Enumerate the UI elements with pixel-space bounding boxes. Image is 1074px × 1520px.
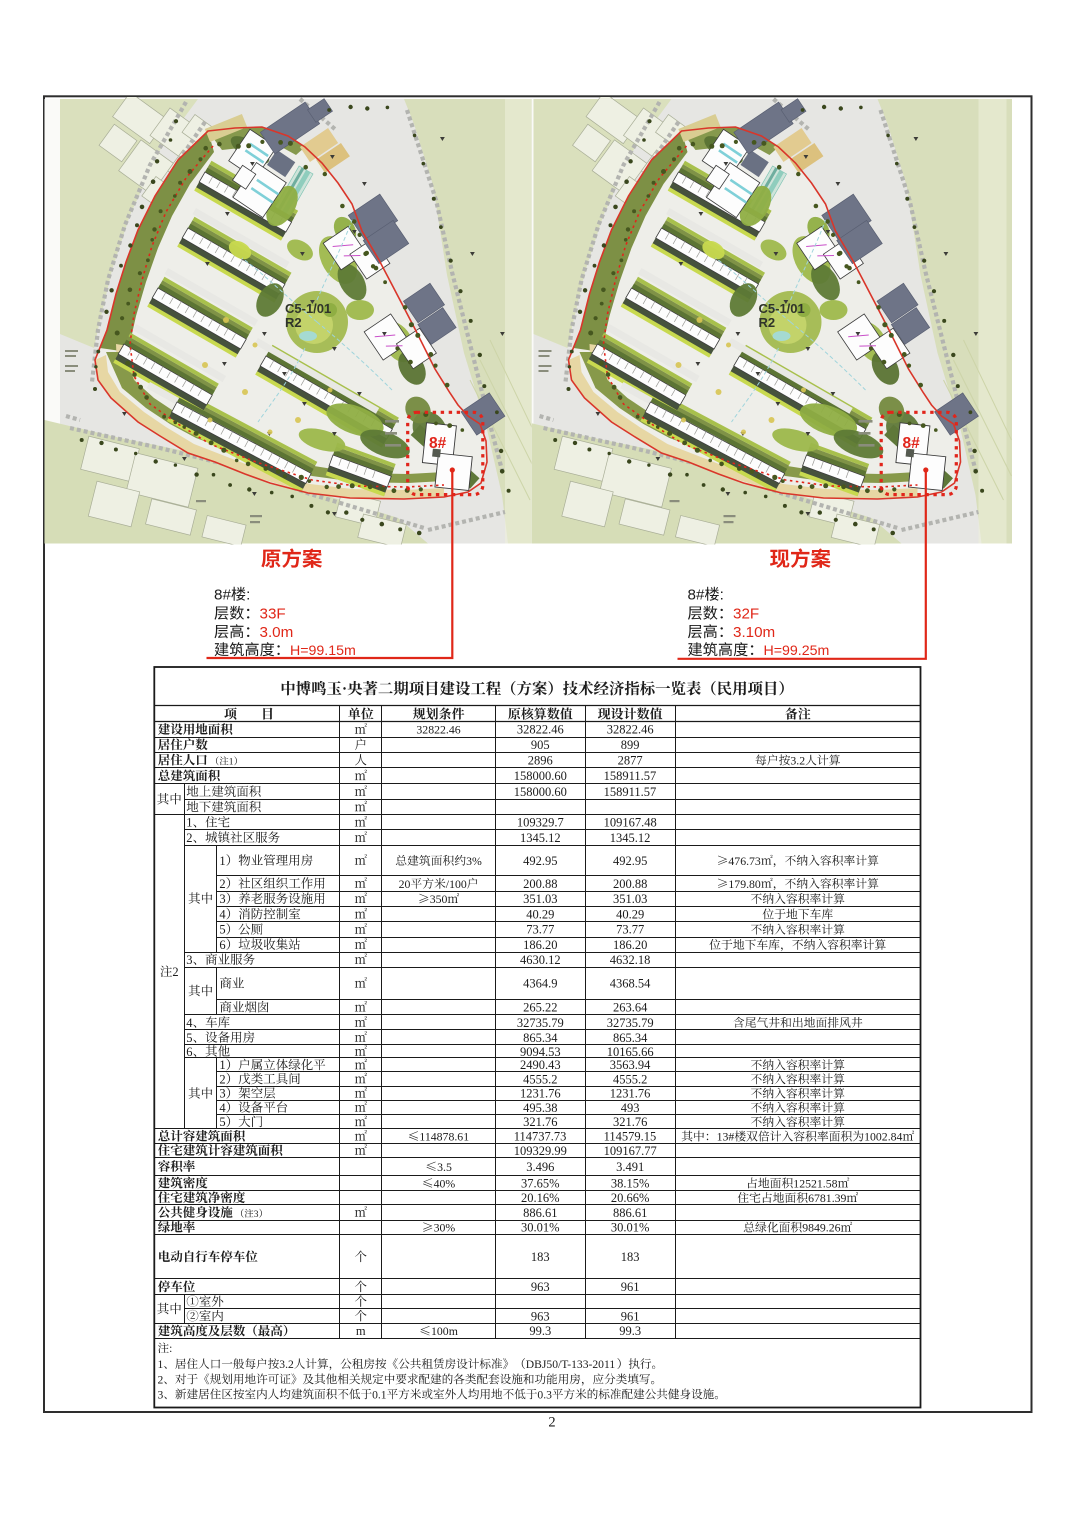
svg-text:3.10m: 3.10m bbox=[733, 624, 775, 641]
svg-text:2896: 2896 bbox=[528, 753, 553, 767]
svg-text:3: 3 bbox=[254, 1210, 259, 1220]
svg-text:3: 3 bbox=[186, 953, 192, 967]
svg-text:109167.48: 109167.48 bbox=[604, 816, 657, 830]
svg-text:6781.39: 6781.39 bbox=[808, 1191, 846, 1205]
svg-text:0.1: 0.1 bbox=[372, 1388, 387, 1401]
svg-text:30.01%: 30.01% bbox=[521, 1221, 560, 1235]
svg-text:905: 905 bbox=[531, 738, 550, 752]
svg-text:40.29: 40.29 bbox=[616, 907, 644, 921]
svg-text:961: 961 bbox=[621, 1280, 640, 1294]
svg-text:2: 2 bbox=[172, 965, 178, 979]
svg-text:m: m bbox=[356, 1324, 366, 1338]
svg-text:4: 4 bbox=[186, 1016, 193, 1030]
svg-text:3.2: 3.2 bbox=[790, 753, 805, 767]
svg-text:20: 20 bbox=[399, 877, 411, 891]
svg-text:4632.18: 4632.18 bbox=[610, 953, 651, 967]
svg-text:73.77: 73.77 bbox=[526, 923, 554, 937]
svg-text::: : bbox=[246, 587, 250, 604]
svg-text:1: 1 bbox=[158, 1358, 164, 1371]
svg-text:32735.79: 32735.79 bbox=[517, 1016, 564, 1030]
svg-text:3.0m: 3.0m bbox=[260, 624, 294, 641]
svg-text:963: 963 bbox=[531, 1309, 550, 1323]
svg-text:1345.12: 1345.12 bbox=[520, 831, 561, 845]
svg-text:200.88: 200.88 bbox=[613, 877, 647, 891]
svg-text:4364.9: 4364.9 bbox=[523, 977, 557, 991]
svg-text:2877: 2877 bbox=[618, 753, 643, 767]
svg-text:5: 5 bbox=[219, 923, 225, 937]
svg-text:2: 2 bbox=[158, 1373, 164, 1386]
svg-text:3: 3 bbox=[158, 1388, 164, 1401]
svg-text:3: 3 bbox=[219, 892, 225, 906]
svg-text:114878.61: 114878.61 bbox=[419, 1130, 469, 1144]
svg-text:183: 183 bbox=[621, 1250, 640, 1264]
svg-text:350: 350 bbox=[430, 892, 448, 906]
svg-text:351.03: 351.03 bbox=[523, 892, 557, 906]
svg-text:32822.46: 32822.46 bbox=[607, 723, 654, 737]
svg-text:2: 2 bbox=[186, 831, 192, 845]
svg-text:0.3: 0.3 bbox=[537, 1388, 552, 1401]
svg-text:321.76: 321.76 bbox=[613, 1115, 647, 1129]
svg-text:30.01%: 30.01% bbox=[611, 1221, 650, 1235]
svg-text:1: 1 bbox=[186, 816, 192, 830]
svg-text:1231.76: 1231.76 bbox=[520, 1087, 561, 1101]
svg-text:40.29: 40.29 bbox=[526, 907, 554, 921]
svg-text:114737.73: 114737.73 bbox=[514, 1130, 567, 1144]
svg-text:99.3: 99.3 bbox=[529, 1324, 551, 1338]
svg-text:179.80: 179.80 bbox=[728, 877, 761, 891]
svg-text:4555.2: 4555.2 bbox=[523, 1072, 557, 1086]
svg-text:13#: 13# bbox=[717, 1130, 735, 1144]
svg-text:5: 5 bbox=[186, 1031, 192, 1045]
svg-text:6: 6 bbox=[186, 1045, 192, 1059]
svg-text:186.20: 186.20 bbox=[613, 938, 647, 952]
svg-text:3.2: 3.2 bbox=[279, 1358, 294, 1371]
svg-text:263.64: 263.64 bbox=[613, 1001, 648, 1015]
svg-text:20.16%: 20.16% bbox=[521, 1191, 560, 1205]
svg-text:DBJ50/T-133-2011: DBJ50/T-133-2011 bbox=[526, 1358, 616, 1371]
svg-text:158911.57: 158911.57 bbox=[604, 785, 657, 799]
svg-text:3.491: 3.491 bbox=[616, 1160, 644, 1174]
svg-text:2: 2 bbox=[548, 1415, 555, 1431]
svg-text:865.34: 865.34 bbox=[523, 1031, 558, 1045]
svg-text:899: 899 bbox=[621, 738, 640, 752]
svg-text:3563.94: 3563.94 bbox=[610, 1058, 651, 1072]
svg-text:186.20: 186.20 bbox=[523, 938, 557, 952]
svg-text:2: 2 bbox=[219, 877, 225, 891]
svg-text:492.95: 492.95 bbox=[523, 854, 557, 868]
svg-text:109167.77: 109167.77 bbox=[604, 1144, 657, 1158]
svg-text::: : bbox=[169, 1342, 172, 1355]
svg-text:865.34: 865.34 bbox=[613, 1031, 648, 1045]
svg-text:37.65%: 37.65% bbox=[521, 1176, 560, 1190]
svg-text:33F: 33F bbox=[260, 606, 286, 623]
svg-text:4: 4 bbox=[219, 907, 226, 921]
svg-text:200.88: 200.88 bbox=[523, 877, 557, 891]
svg-text:12521.58: 12521.58 bbox=[793, 1176, 837, 1190]
svg-text:109329.99: 109329.99 bbox=[514, 1144, 567, 1158]
svg-text:3.496: 3.496 bbox=[526, 1160, 554, 1174]
svg-text:495.38: 495.38 bbox=[523, 1101, 557, 1115]
svg-text:32822.46: 32822.46 bbox=[416, 723, 460, 737]
svg-text:321.76: 321.76 bbox=[523, 1115, 557, 1129]
svg-text:351.03: 351.03 bbox=[613, 892, 647, 906]
svg-text:1002.84: 1002.84 bbox=[864, 1130, 902, 1144]
svg-text:9849.26: 9849.26 bbox=[802, 1221, 840, 1235]
svg-text:32F: 32F bbox=[733, 606, 759, 623]
svg-text:961: 961 bbox=[621, 1309, 640, 1323]
svg-text:20.66%: 20.66% bbox=[611, 1191, 650, 1205]
svg-text:1345.12: 1345.12 bbox=[610, 831, 651, 845]
svg-text:963: 963 bbox=[531, 1280, 550, 1294]
svg-text:30%: 30% bbox=[434, 1221, 456, 1235]
svg-text:4368.54: 4368.54 bbox=[610, 977, 651, 991]
svg-text:886.61: 886.61 bbox=[613, 1206, 647, 1220]
svg-text:3%: 3% bbox=[466, 854, 482, 868]
svg-text:109329.7: 109329.7 bbox=[517, 816, 564, 830]
svg-text:183: 183 bbox=[531, 1250, 550, 1264]
svg-text:2: 2 bbox=[219, 1072, 225, 1086]
svg-text:6: 6 bbox=[219, 938, 225, 952]
svg-text:4630.12: 4630.12 bbox=[520, 953, 561, 967]
svg-text:10165.66: 10165.66 bbox=[607, 1045, 654, 1059]
svg-text:4555.2: 4555.2 bbox=[613, 1072, 647, 1086]
svg-text:32822.46: 32822.46 bbox=[517, 723, 564, 737]
svg-text:100m: 100m bbox=[431, 1324, 458, 1338]
svg-text:32735.79: 32735.79 bbox=[607, 1016, 654, 1030]
svg-text:1: 1 bbox=[229, 757, 234, 767]
svg-text:265.22: 265.22 bbox=[523, 1001, 557, 1015]
svg-text:3: 3 bbox=[219, 1087, 225, 1101]
svg-text:158000.60: 158000.60 bbox=[514, 785, 567, 799]
svg-text:114579.15: 114579.15 bbox=[604, 1130, 657, 1144]
svg-text:158000.60: 158000.60 bbox=[514, 769, 567, 783]
svg-text:73.77: 73.77 bbox=[616, 923, 644, 937]
svg-text:158911.57: 158911.57 bbox=[604, 769, 657, 783]
svg-text:8#: 8# bbox=[214, 587, 231, 604]
svg-text:38.15%: 38.15% bbox=[611, 1176, 650, 1190]
svg-text:8#: 8# bbox=[688, 587, 705, 604]
svg-text:476.73: 476.73 bbox=[728, 854, 761, 868]
svg-text:886.61: 886.61 bbox=[523, 1206, 557, 1220]
svg-text:3.5: 3.5 bbox=[437, 1160, 452, 1174]
svg-text:/100: /100 bbox=[446, 877, 467, 891]
svg-text:H=99.15m: H=99.15m bbox=[290, 643, 356, 659]
svg-text:1: 1 bbox=[219, 1058, 225, 1072]
svg-text:493: 493 bbox=[621, 1101, 640, 1115]
svg-text:99.3: 99.3 bbox=[619, 1324, 641, 1338]
svg-text:1231.76: 1231.76 bbox=[610, 1087, 651, 1101]
svg-text:9094.53: 9094.53 bbox=[520, 1045, 561, 1059]
svg-text:40%: 40% bbox=[434, 1176, 456, 1190]
svg-text:5: 5 bbox=[219, 1115, 225, 1129]
svg-text:492.95: 492.95 bbox=[613, 854, 647, 868]
svg-text::: : bbox=[720, 587, 724, 604]
svg-text:1: 1 bbox=[219, 854, 225, 868]
svg-text:2490.43: 2490.43 bbox=[520, 1058, 561, 1072]
svg-text:H=99.25m: H=99.25m bbox=[764, 643, 830, 659]
svg-text:4: 4 bbox=[219, 1101, 226, 1115]
